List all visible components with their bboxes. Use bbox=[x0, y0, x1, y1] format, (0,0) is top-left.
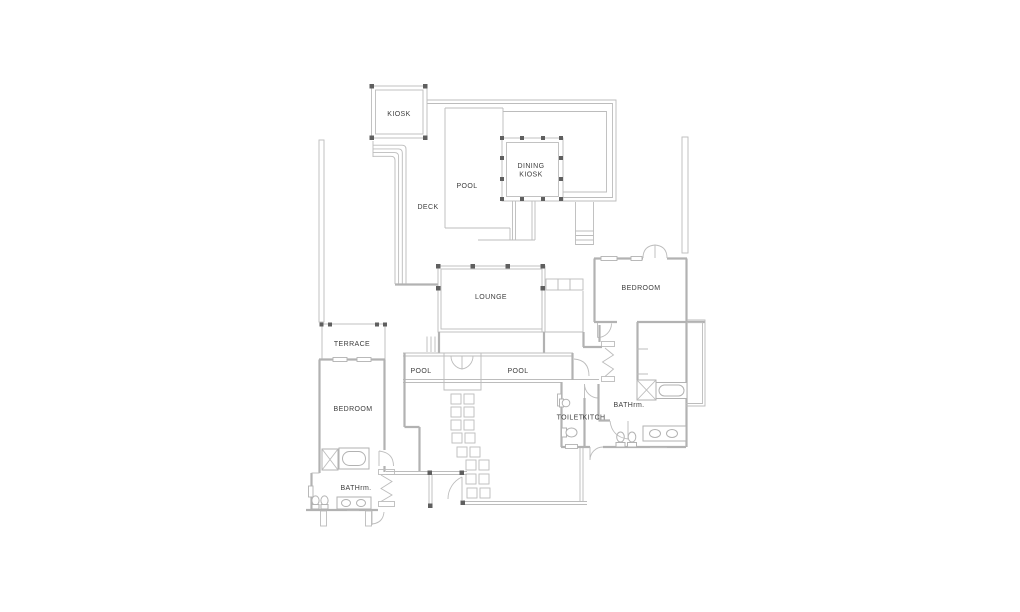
walkway-rails bbox=[513, 201, 536, 240]
label-bedroom-right: BEDROOM bbox=[622, 285, 661, 292]
label-pool-upper: POOL bbox=[456, 183, 477, 190]
fence-upper bbox=[386, 472, 467, 475]
door-arc bbox=[585, 384, 599, 398]
toilet-icon bbox=[312, 496, 319, 509]
window bbox=[333, 358, 347, 362]
door-arc bbox=[610, 421, 628, 439]
window bbox=[601, 257, 617, 261]
window-ticks bbox=[637, 349, 648, 374]
paving-stones bbox=[451, 394, 490, 498]
vanity-sinks-icon bbox=[337, 497, 371, 511]
pool-strip-bottom-wall bbox=[403, 380, 599, 383]
lounge-side-windows bbox=[546, 279, 583, 290]
fence-vertical-left bbox=[429, 475, 432, 509]
label-bathroom-right: BATHrm. bbox=[613, 402, 644, 409]
door-arc bbox=[590, 447, 603, 460]
dining-kiosk-structure bbox=[500, 136, 594, 245]
pool-strip-structure bbox=[403, 353, 599, 472]
kiosk-post bbox=[423, 84, 428, 89]
shower-icon bbox=[322, 449, 338, 470]
gate-door-arc bbox=[448, 477, 462, 500]
window bbox=[566, 445, 578, 449]
lounge-closet-wall bbox=[542, 291, 583, 332]
double-door-arc bbox=[643, 245, 667, 258]
left-fence-wall bbox=[319, 140, 324, 322]
wall-stub bbox=[366, 511, 372, 526]
label-kiosk: KIOSK bbox=[387, 111, 410, 118]
window bbox=[357, 358, 371, 362]
room-labels: KIOSK POOL DECK DINING KIOSK LOUNGE BEDR… bbox=[334, 111, 661, 492]
steps-icon bbox=[427, 337, 439, 353]
vanity-sinks-icon bbox=[643, 426, 686, 448]
kiosk-post bbox=[370, 84, 375, 89]
toilet-icon bbox=[616, 432, 625, 447]
label-kitchen: KITCH bbox=[583, 415, 606, 422]
accordion-door-icon bbox=[602, 342, 615, 382]
toilet-icon bbox=[562, 428, 578, 437]
label-dining-line1: DINING bbox=[518, 163, 545, 170]
deck-boundary-inner bbox=[427, 104, 613, 198]
double-door-arc bbox=[451, 356, 473, 369]
bathtub-icon bbox=[656, 383, 687, 399]
window bbox=[631, 257, 642, 261]
bathroom-left-structure bbox=[306, 470, 395, 527]
deck-boundary-inner2 bbox=[503, 112, 607, 193]
right-fence-wall bbox=[682, 137, 688, 253]
lounge-posts bbox=[436, 264, 545, 291]
label-dining-line2: KIOSK bbox=[519, 172, 542, 179]
bathroom-right-structure bbox=[610, 320, 705, 448]
bedroom-left-structure bbox=[319, 358, 394, 474]
deck-boundary-outer bbox=[427, 100, 616, 201]
accordion-door-icon bbox=[379, 470, 395, 507]
lounge-to-pool-walls bbox=[439, 332, 544, 353]
label-deck: DECK bbox=[417, 204, 438, 211]
stairs-icon bbox=[576, 202, 594, 245]
sink-icon bbox=[560, 399, 570, 407]
kiosk-post bbox=[423, 136, 428, 141]
label-bathroom-left: BATHrm. bbox=[340, 485, 371, 492]
lounge-structure bbox=[427, 264, 583, 353]
garden-fences bbox=[386, 447, 587, 508]
fence-vertical-right bbox=[580, 447, 583, 502]
bidet-icon bbox=[628, 432, 637, 447]
label-pool-left: POOL bbox=[410, 368, 431, 375]
pool-strip-top-wall bbox=[403, 353, 573, 356]
deck-boundary bbox=[427, 100, 616, 201]
window bbox=[309, 486, 314, 497]
bathtub-icon bbox=[339, 448, 369, 469]
wall-stub bbox=[321, 511, 327, 526]
deck-steps-lines bbox=[373, 141, 438, 285]
floor-plan-drawing: KIOSK POOL DECK DINING KIOSK LOUNGE BEDR… bbox=[0, 0, 1020, 612]
floor-plan-page: KIOSK POOL DECK DINING KIOSK LOUNGE BEDR… bbox=[0, 0, 1020, 612]
label-bedroom-left: BEDROOM bbox=[334, 406, 373, 413]
door-arc bbox=[372, 511, 384, 525]
fence-lower bbox=[461, 502, 587, 505]
door-arc bbox=[574, 359, 589, 376]
label-pool-right: POOL bbox=[507, 368, 528, 375]
label-lounge: LOUNGE bbox=[475, 294, 507, 301]
label-toilet: TOILET bbox=[557, 415, 584, 422]
outer-skin-wall bbox=[686, 320, 705, 406]
shower-icon bbox=[637, 380, 656, 400]
kiosk-post bbox=[370, 136, 375, 141]
pool-landing bbox=[444, 353, 481, 390]
label-terrace: TERRACE bbox=[334, 341, 370, 348]
door-arc bbox=[379, 451, 394, 466]
bidet-icon bbox=[321, 496, 328, 509]
